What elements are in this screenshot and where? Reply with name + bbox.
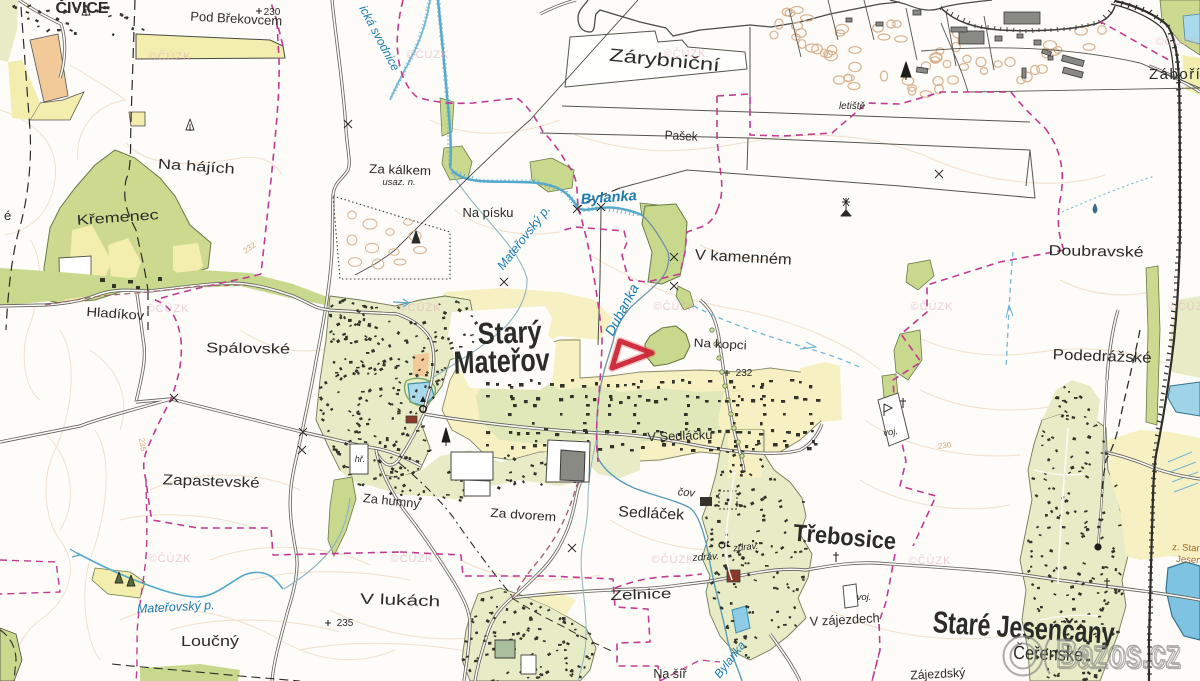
svg-text:V lukách: V lukách	[360, 591, 441, 611]
svg-text:é: é	[4, 208, 11, 223]
svg-text:čov: čov	[677, 486, 697, 500]
svg-text:©ČÚZK: ©ČÚZK	[653, 300, 696, 313]
svg-text:©ČÚZK: ©ČÚZK	[1168, 300, 1200, 313]
svg-text:©ČÚZK: ©ČÚZK	[398, 301, 441, 314]
svg-text:©ČÚZK: ©ČÚZK	[663, 47, 706, 60]
svg-text:voj.: voj.	[883, 426, 899, 439]
svg-text:Na písku: Na písku	[463, 206, 514, 220]
svg-text:Na kopci: Na kopci	[693, 336, 747, 353]
svg-text:Doubravské: Doubravské	[1048, 243, 1143, 261]
svg-text:z. Star: z. Star	[1172, 542, 1200, 554]
svg-text:Bazos.cz: Bazos.cz	[1058, 634, 1182, 678]
svg-text:Zájezdský: Zájezdský	[910, 666, 966, 681]
svg-text:©ČÚZK: ©ČÚZK	[908, 554, 951, 567]
svg-text:©ČÚZK: ©ČÚZK	[390, 552, 433, 565]
svg-text:Záboří: Záboří	[1149, 66, 1200, 83]
svg-text:Zelnice: Zelnice	[610, 585, 672, 603]
svg-text:usaz. n.: usaz. n.	[382, 177, 415, 188]
svg-text:©ČÚZK: ©ČÚZK	[148, 552, 191, 565]
svg-text:230: 230	[937, 440, 952, 451]
svg-text:Pašek: Pašek	[664, 128, 698, 144]
svg-text:V Sedláčku: V Sedláčku	[647, 428, 712, 444]
svg-text:©ČÚZK: ©ČÚZK	[146, 302, 189, 315]
svg-text:hř.: hř.	[355, 454, 366, 464]
svg-text:ČIVICE: ČIVICE	[56, 0, 109, 17]
svg-text:235: 235	[337, 618, 354, 629]
svg-text:voj.: voj.	[857, 592, 872, 603]
svg-text:©ČÚZK: ©ČÚZK	[406, 48, 449, 61]
svg-text:Na šíř: Na šíř	[653, 667, 687, 681]
svg-text:Mateřov: Mateřov	[453, 341, 550, 380]
svg-text:©ČÚZK: ©ČÚZK	[651, 553, 694, 566]
svg-text:Loučný: Loučný	[181, 633, 240, 650]
svg-text:©ČÚZK: ©ČÚZK	[1155, 35, 1198, 48]
svg-text:©ČÚZK: ©ČÚZK	[910, 300, 953, 313]
svg-text:zdráv.: zdráv.	[691, 551, 719, 564]
svg-text:Zapastevské: Zapastevské	[162, 472, 259, 491]
svg-text:letiště: letiště	[839, 101, 866, 112]
svg-text:232: 232	[736, 368, 753, 379]
svg-text:Spálovské: Spálovské	[206, 339, 291, 356]
svg-text:Sedláček: Sedláček	[618, 503, 685, 523]
svg-text:Podedrážské: Podedrážské	[1052, 346, 1152, 366]
svg-text:Jesenč: Jesenč	[1176, 554, 1200, 567]
svg-text:Za kálkem: Za kálkem	[369, 162, 431, 178]
svg-text:©ČÚZK: ©ČÚZK	[148, 50, 191, 63]
